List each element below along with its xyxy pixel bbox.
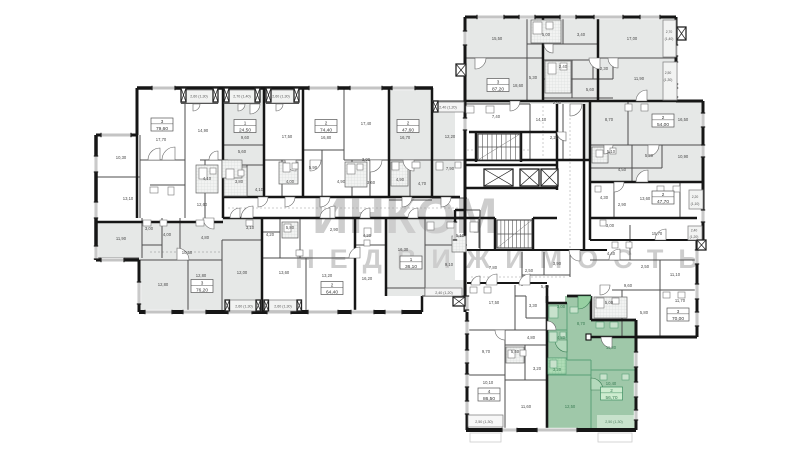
svg-text:64,40: 64,40 xyxy=(326,290,338,296)
svg-text:5,60: 5,60 xyxy=(586,87,595,92)
svg-text:4,20: 4,20 xyxy=(363,233,372,238)
svg-text:(1,10): (1,10) xyxy=(691,202,700,206)
svg-text:5,30: 5,30 xyxy=(645,153,654,158)
svg-text:2: 2 xyxy=(331,282,334,287)
svg-text:5,90: 5,90 xyxy=(309,165,318,170)
svg-text:4,90: 4,90 xyxy=(396,177,405,182)
svg-text:4,80: 4,80 xyxy=(201,235,210,240)
svg-text:4,70: 4,70 xyxy=(418,181,427,186)
svg-text:12,80: 12,80 xyxy=(196,273,207,278)
svg-text:5,40: 5,40 xyxy=(511,349,520,354)
svg-text:2,50 (1,30): 2,50 (1,30) xyxy=(605,420,622,424)
svg-text:4,50: 4,50 xyxy=(618,167,627,172)
svg-text:4,80: 4,80 xyxy=(527,335,536,340)
svg-text:3,80: 3,80 xyxy=(235,179,244,184)
svg-text:70,00: 70,00 xyxy=(672,316,684,322)
svg-text:12,50: 12,50 xyxy=(565,404,576,409)
svg-text:17,50: 17,50 xyxy=(282,134,293,139)
svg-text:3,00: 3,00 xyxy=(145,226,154,231)
svg-text:2,50: 2,50 xyxy=(665,71,672,75)
svg-text:87,20: 87,20 xyxy=(492,87,504,93)
svg-text:3,20: 3,20 xyxy=(533,366,542,371)
svg-text:79,60: 79,60 xyxy=(156,126,168,132)
svg-text:3: 3 xyxy=(201,280,204,285)
svg-text:5,60: 5,60 xyxy=(238,149,247,154)
svg-text:12,20: 12,20 xyxy=(445,134,456,139)
svg-text:7,80: 7,80 xyxy=(489,265,498,270)
svg-text:13,60: 13,60 xyxy=(279,270,290,275)
svg-text:10,50: 10,50 xyxy=(182,250,193,255)
svg-text:5,80: 5,80 xyxy=(286,225,295,230)
svg-text:11,60: 11,60 xyxy=(521,404,532,409)
svg-text:4,00: 4,00 xyxy=(286,179,295,184)
svg-text:9,10: 9,10 xyxy=(445,262,454,267)
svg-text:86,50: 86,50 xyxy=(483,396,495,402)
svg-text:3: 3 xyxy=(677,309,680,314)
svg-text:4,80: 4,80 xyxy=(557,335,566,340)
svg-text:2,40 (1,20): 2,40 (1,20) xyxy=(439,106,456,110)
svg-text:2: 2 xyxy=(662,115,665,120)
svg-text:10,90: 10,90 xyxy=(678,154,689,159)
svg-text:15,70: 15,70 xyxy=(652,231,663,236)
svg-text:56,70: 56,70 xyxy=(605,395,617,401)
svg-text:13,20: 13,20 xyxy=(322,273,333,278)
svg-text:8,70: 8,70 xyxy=(577,321,586,326)
svg-text:2,60 (1,30): 2,60 (1,30) xyxy=(274,305,291,309)
svg-text:17,40: 17,40 xyxy=(361,121,372,126)
svg-text:5,00: 5,00 xyxy=(542,32,551,37)
svg-text:5,10: 5,10 xyxy=(456,233,465,238)
svg-text:1: 1 xyxy=(410,257,413,262)
svg-text:3: 3 xyxy=(497,79,500,84)
svg-text:2: 2 xyxy=(662,192,665,197)
svg-text:2,60: 2,60 xyxy=(553,100,562,105)
svg-text:2,30: 2,30 xyxy=(600,66,609,71)
svg-text:16,20: 16,20 xyxy=(362,276,373,281)
svg-text:12,00: 12,00 xyxy=(237,270,248,275)
svg-text:7,90: 7,90 xyxy=(446,166,455,171)
svg-text:14,10: 14,10 xyxy=(536,117,547,122)
svg-text:3,30: 3,30 xyxy=(529,303,538,308)
svg-text:2,90: 2,90 xyxy=(618,202,627,207)
svg-text:4: 4 xyxy=(488,389,491,394)
svg-text:(1,40): (1,40) xyxy=(665,37,674,41)
svg-text:18,60: 18,60 xyxy=(513,83,524,88)
svg-text:2,40: 2,40 xyxy=(691,229,698,233)
svg-text:3,40: 3,40 xyxy=(577,32,586,37)
svg-text:5,80: 5,80 xyxy=(640,310,649,315)
svg-text:11,90: 11,90 xyxy=(116,236,127,241)
svg-text:24,50: 24,50 xyxy=(239,128,251,134)
svg-text:2: 2 xyxy=(610,388,613,393)
svg-text:16,70: 16,70 xyxy=(400,135,411,140)
svg-text:10,10: 10,10 xyxy=(483,380,494,385)
svg-text:14,90: 14,90 xyxy=(198,128,209,133)
svg-text:9,70: 9,70 xyxy=(482,349,491,354)
svg-text:9,60: 9,60 xyxy=(624,283,633,288)
svg-text:11,10: 11,10 xyxy=(670,272,681,277)
svg-text:2,90: 2,90 xyxy=(330,227,339,232)
svg-text:5,40: 5,40 xyxy=(541,284,550,289)
svg-text:3,60: 3,60 xyxy=(367,180,376,185)
svg-text:4,00: 4,00 xyxy=(163,232,172,237)
svg-text:4,90: 4,90 xyxy=(337,179,346,184)
svg-text:16,80: 16,80 xyxy=(321,135,332,140)
svg-text:2,50: 2,50 xyxy=(641,264,650,269)
svg-text:4,20: 4,20 xyxy=(266,232,275,237)
svg-text:3: 3 xyxy=(161,119,164,124)
svg-text:76,20: 76,20 xyxy=(196,288,208,294)
svg-text:2,50: 2,50 xyxy=(525,268,534,273)
svg-text:(1,30): (1,30) xyxy=(664,78,673,82)
svg-text:1: 1 xyxy=(244,120,247,125)
svg-text:11,80: 11,80 xyxy=(606,345,617,350)
svg-text:4,30: 4,30 xyxy=(600,195,609,200)
svg-text:2,40 (1,20): 2,40 (1,20) xyxy=(435,291,452,295)
svg-text:2: 2 xyxy=(325,120,328,125)
svg-text:17,00: 17,00 xyxy=(627,36,638,41)
svg-text:17,70: 17,70 xyxy=(156,137,167,142)
svg-text:8,70: 8,70 xyxy=(605,117,614,122)
svg-text:3,90: 3,90 xyxy=(553,261,562,266)
svg-text:3,00: 3,00 xyxy=(606,223,615,228)
svg-text:36,10: 36,10 xyxy=(405,264,417,270)
svg-text:2,60 (1,30): 2,60 (1,30) xyxy=(272,95,289,99)
svg-text:2: 2 xyxy=(407,120,410,125)
svg-text:17,50: 17,50 xyxy=(489,300,500,305)
svg-text:3,00: 3,00 xyxy=(557,304,566,309)
svg-text:10,30: 10,30 xyxy=(116,155,127,160)
svg-text:9,60: 9,60 xyxy=(241,135,250,140)
svg-text:12,60: 12,60 xyxy=(197,202,208,207)
svg-text:2,50 (1,30): 2,50 (1,30) xyxy=(475,420,492,424)
svg-text:47,60: 47,60 xyxy=(402,128,414,134)
svg-text:5,10: 5,10 xyxy=(607,149,616,154)
svg-text:2,70 (1,40): 2,70 (1,40) xyxy=(233,95,250,99)
svg-text:2,60 (1,30): 2,60 (1,30) xyxy=(190,95,207,99)
svg-text:2,60 (1,30): 2,60 (1,30) xyxy=(235,305,252,309)
svg-text:47,70: 47,70 xyxy=(657,199,669,205)
svg-text:2,20: 2,20 xyxy=(692,195,699,199)
svg-text:2,40: 2,40 xyxy=(559,64,568,69)
svg-text:4,40: 4,40 xyxy=(607,251,616,256)
svg-text:7,40: 7,40 xyxy=(492,114,501,119)
svg-text:16,30: 16,30 xyxy=(398,247,409,252)
svg-text:5,30: 5,30 xyxy=(529,75,538,80)
svg-text:12,80: 12,80 xyxy=(158,282,169,287)
svg-text:2,70: 2,70 xyxy=(666,30,673,34)
svg-text:11,90: 11,90 xyxy=(634,76,645,81)
svg-text:4,10: 4,10 xyxy=(203,176,212,181)
svg-text:3,20: 3,20 xyxy=(553,367,562,372)
svg-text:5,00: 5,00 xyxy=(605,300,614,305)
svg-text:2,20: 2,20 xyxy=(550,135,559,140)
svg-text:11,70: 11,70 xyxy=(675,298,686,303)
svg-text:54,00: 54,00 xyxy=(657,122,669,128)
svg-text:13,60: 13,60 xyxy=(640,196,651,201)
svg-text:10,40: 10,40 xyxy=(606,381,617,386)
svg-text:16,50: 16,50 xyxy=(678,117,689,122)
svg-text:15,50: 15,50 xyxy=(492,36,503,41)
svg-text:74,40: 74,40 xyxy=(320,128,332,134)
svg-text:4,10: 4,10 xyxy=(255,187,264,192)
svg-text:3,10: 3,10 xyxy=(246,225,255,230)
svg-text:13,10: 13,10 xyxy=(123,196,134,201)
svg-text:(1,20): (1,20) xyxy=(690,235,699,239)
svg-text:3,00: 3,00 xyxy=(362,157,371,162)
